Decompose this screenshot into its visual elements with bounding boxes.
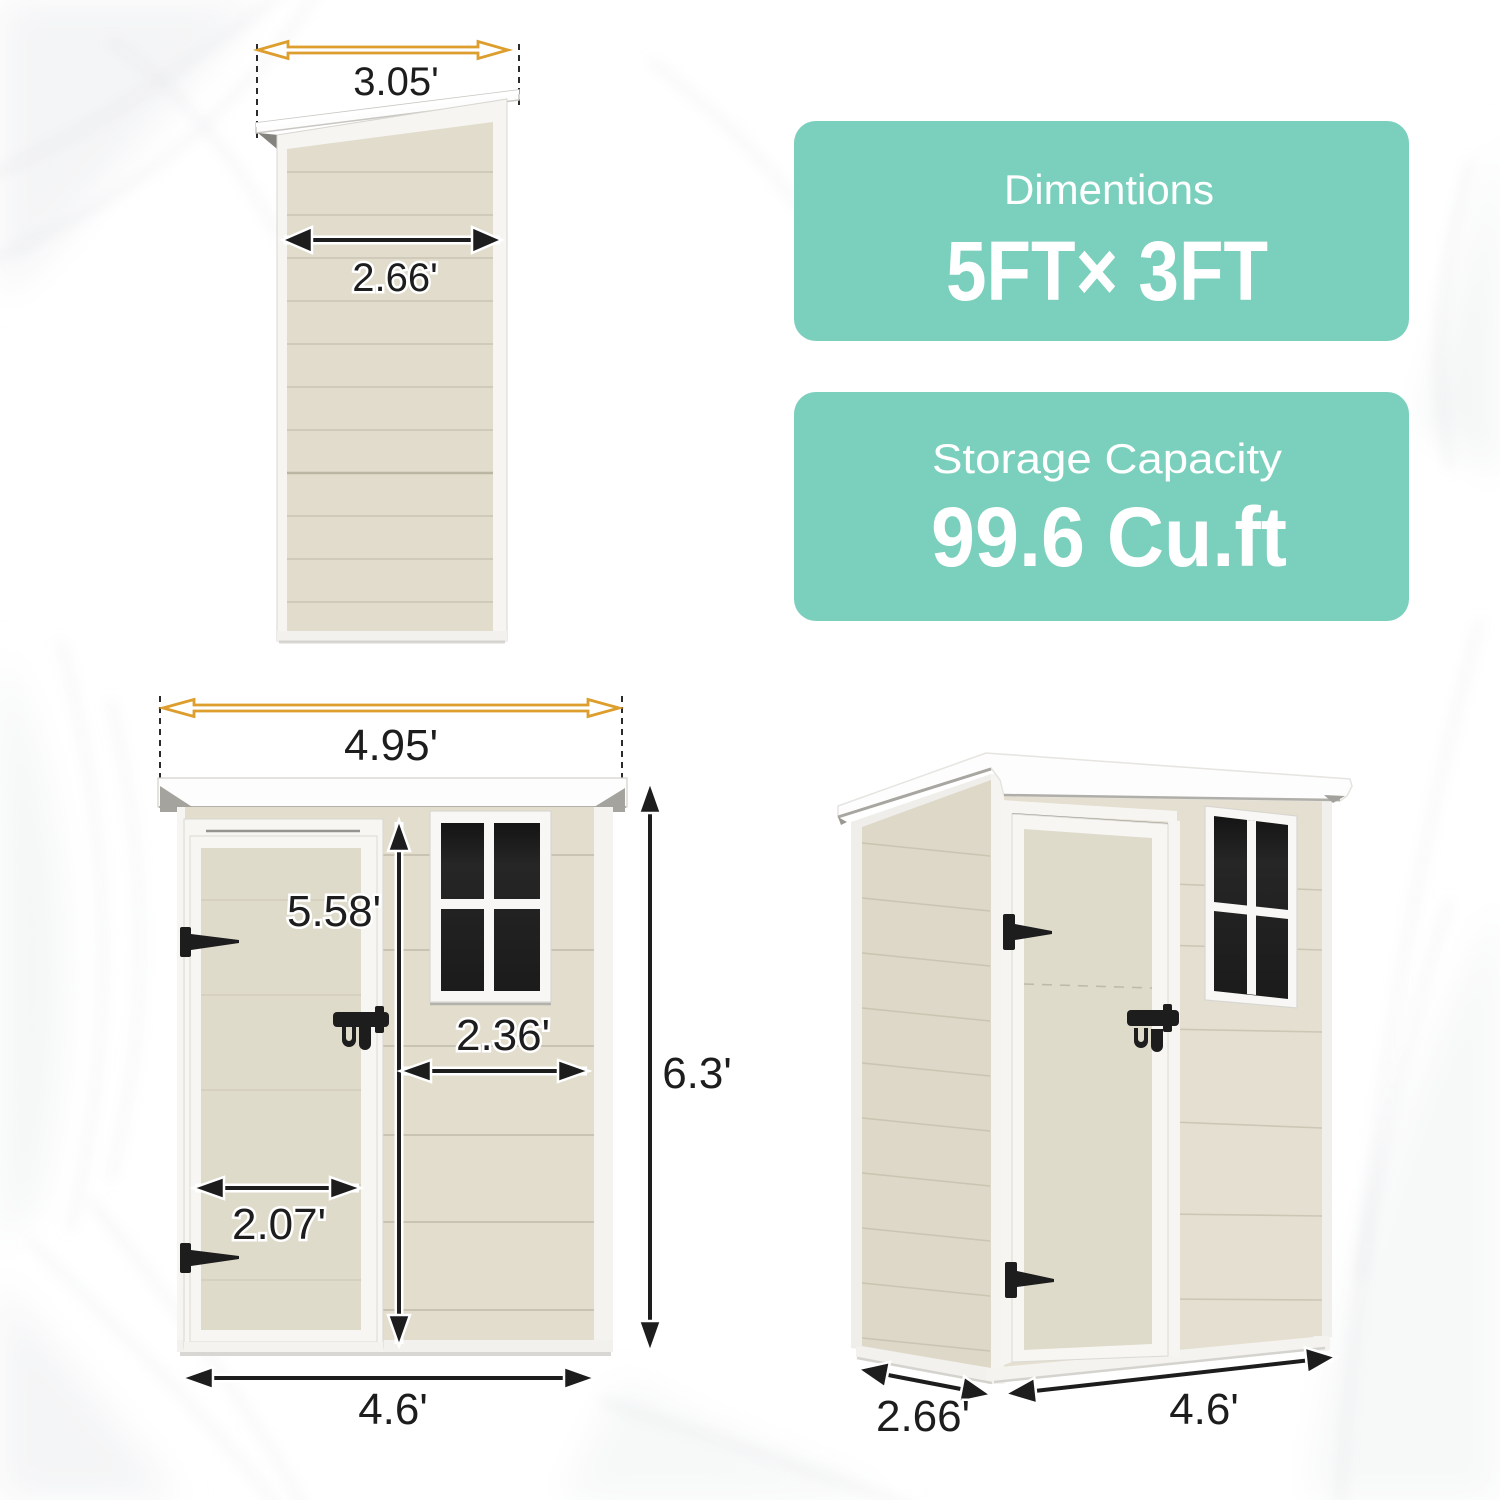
- svg-text:2.36': 2.36': [456, 1011, 550, 1060]
- svg-text:6.3': 6.3': [662, 1049, 732, 1098]
- svg-text:3.05': 3.05': [353, 60, 439, 104]
- svg-text:4.6': 4.6': [358, 1385, 428, 1434]
- svg-text:5FT× 3FT: 5FT× 3FT: [946, 224, 1268, 318]
- svg-text:4.6': 4.6': [1169, 1385, 1239, 1434]
- svg-text:99.6 Cu.ft: 99.6 Cu.ft: [931, 490, 1287, 584]
- svg-text:Storage Capacity: Storage Capacity: [932, 435, 1282, 482]
- svg-text:2.66': 2.66': [876, 1392, 970, 1441]
- svg-text:Dimentions: Dimentions: [1004, 166, 1214, 213]
- svg-text:2.07': 2.07': [232, 1200, 326, 1249]
- svg-text:5.58': 5.58': [287, 887, 381, 936]
- svg-text:4.95': 4.95': [344, 721, 438, 770]
- svg-text:2.66': 2.66': [352, 256, 438, 300]
